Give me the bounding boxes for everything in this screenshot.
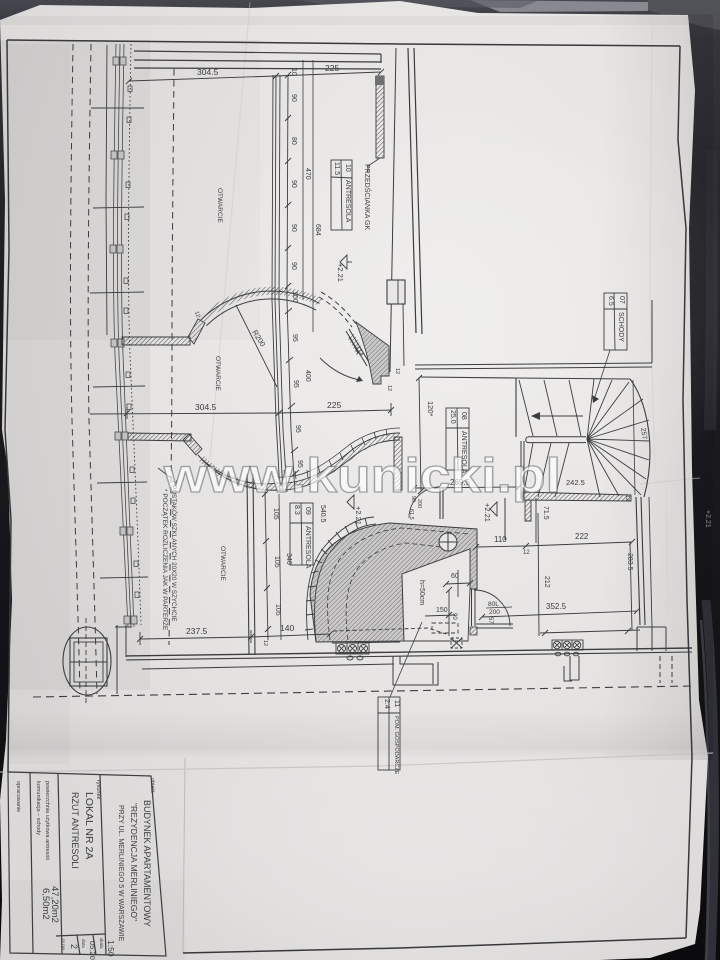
svg-text:225: 225 (327, 400, 341, 410)
svg-text:105: 105 (272, 508, 279, 520)
svg-text:120*: 120* (426, 401, 435, 417)
svg-text:skala: skala (99, 938, 104, 949)
svg-text:+2.21: +2.21 (704, 510, 711, 528)
svg-text:OTWARCIE: OTWARCIE (216, 188, 223, 223)
svg-text:obiekt: obiekt (149, 778, 155, 793)
svg-text:71.5: 71.5 (542, 506, 549, 520)
svg-text:90: 90 (451, 613, 457, 620)
svg-text:95: 95 (294, 425, 301, 433)
svg-text:* POCZĄTEK ROZLICZENIA JAK W P: * POCZĄTEK ROZLICZENIA JAK W PARTERZE (161, 489, 168, 631)
svg-text:100: 100 (291, 291, 298, 303)
svg-text:08: 08 (460, 412, 467, 420)
svg-text:2.4: 2.4 (383, 699, 390, 709)
svg-text:222: 222 (575, 532, 589, 541)
svg-text:+2.21: +2.21 (354, 506, 363, 525)
svg-text:05.20: 05.20 (88, 941, 97, 960)
svg-text:SCHODY: SCHODY (617, 312, 624, 342)
svg-text:225: 225 (325, 63, 339, 73)
svg-text:h=50cm: h=50cm (418, 580, 425, 605)
svg-text:470: 470 (304, 168, 311, 180)
svg-text:237.5: 237.5 (186, 626, 208, 636)
svg-text:07: 07 (618, 296, 625, 304)
svg-text:+2.21: +2.21 (336, 263, 345, 282)
svg-text:POM. GOSPODARCZE: POM. GOSPODARCZE (393, 716, 399, 775)
svg-text:90: 90 (290, 94, 297, 102)
svg-text:LOKAL NR 2A: LOKAL NR 2A (83, 792, 95, 859)
svg-text:60: 60 (451, 573, 459, 580)
svg-text:8.3: 8.3 (293, 505, 300, 515)
svg-text:105: 105 (273, 556, 280, 568)
svg-text:540.5: 540.5 (319, 505, 326, 523)
svg-text:nr rys.: nr rys. (61, 939, 66, 952)
svg-text:95: 95 (292, 380, 299, 388)
svg-text:12: 12 (394, 368, 400, 374)
svg-text:340: 340 (285, 553, 292, 565)
svg-text:PRZY UL. MERLINIEGO 5 W WARSZA: PRZY UL. MERLINIEGO 5 W WARSZAWIE (117, 805, 124, 942)
svg-text:10: 10 (344, 164, 351, 172)
svg-text:+2.21: +2.21 (483, 503, 492, 522)
svg-text:57: 57 (487, 617, 493, 624)
svg-text:80: 80 (290, 137, 297, 145)
svg-text:110: 110 (494, 535, 507, 544)
svg-text:12: 12 (523, 550, 530, 556)
svg-text:352.5: 352.5 (546, 602, 567, 611)
svg-text:90: 90 (290, 180, 297, 188)
svg-text:2: 2 (69, 944, 79, 949)
svg-text:212: 212 (543, 576, 550, 588)
svg-text:1:50: 1:50 (106, 940, 116, 957)
svg-text:11: 11 (393, 700, 400, 707)
svg-text:opracowanie: opracowanie (15, 781, 21, 812)
svg-text:400: 400 (304, 370, 311, 382)
svg-text:105: 105 (274, 604, 281, 616)
svg-text:90: 90 (290, 224, 297, 232)
svg-text:ANTRESOLA: ANTRESOLA (304, 526, 311, 569)
svg-text:11.5: 11.5 (333, 162, 340, 175)
svg-text:12: 12 (262, 640, 268, 646)
svg-text:RZUT ANTRESOLI: RZUT ANTRESOLI (70, 792, 80, 869)
svg-text:"REZYDENCJA MERLINIEGO": "REZYDENCJA MERLINIEGO" (129, 803, 139, 921)
svg-text:10: 10 (290, 68, 297, 76)
svg-text:90: 90 (290, 262, 297, 270)
svg-text:95: 95 (291, 334, 298, 342)
svg-text:304.5: 304.5 (197, 67, 219, 77)
svg-text:150: 150 (436, 607, 448, 614)
svg-text:200: 200 (489, 609, 500, 616)
svg-text:242.5: 242.5 (566, 478, 585, 487)
svg-text:6,50m2: 6,50m2 (40, 888, 51, 920)
svg-text:OTWARCIE: OTWARCIE (214, 356, 221, 391)
svg-text:ANTRESOLA: ANTRESOLA (344, 180, 351, 223)
svg-text:25.0: 25.0 (449, 410, 456, 424)
svg-text:OTWARCIE: OTWARCIE (219, 546, 226, 581)
svg-text:6.5: 6.5 (607, 296, 614, 306)
svg-text:BUDYNEK APARTAMENTOWY: BUDYNEK APARTAMENTOWY (142, 800, 152, 927)
svg-text:304.5: 304.5 (195, 402, 217, 412)
svg-text:09: 09 (304, 507, 311, 515)
svg-text:www.kunicki.pl: www.kunicki.pl (163, 450, 561, 503)
svg-text:283.5: 283.5 (626, 553, 633, 571)
svg-text:684: 684 (314, 224, 321, 236)
svg-text:data: data (81, 939, 86, 948)
svg-text:12: 12 (386, 385, 392, 391)
svg-text:komunikacja – schody: komunikacja – schody (35, 781, 41, 835)
svg-text:140: 140 (280, 623, 294, 633)
svg-text:PRZEDŚCIANKA GK: PRZEDŚCIANKA GK (363, 164, 372, 230)
svg-text:12: 12 (624, 495, 630, 501)
svg-text:80L: 80L (488, 601, 499, 608)
svg-text:powierzchnia użytkowa antresol: powierzchnia użytkowa antresoli (44, 781, 50, 860)
svg-text:61.5: 61.5 (408, 509, 414, 520)
